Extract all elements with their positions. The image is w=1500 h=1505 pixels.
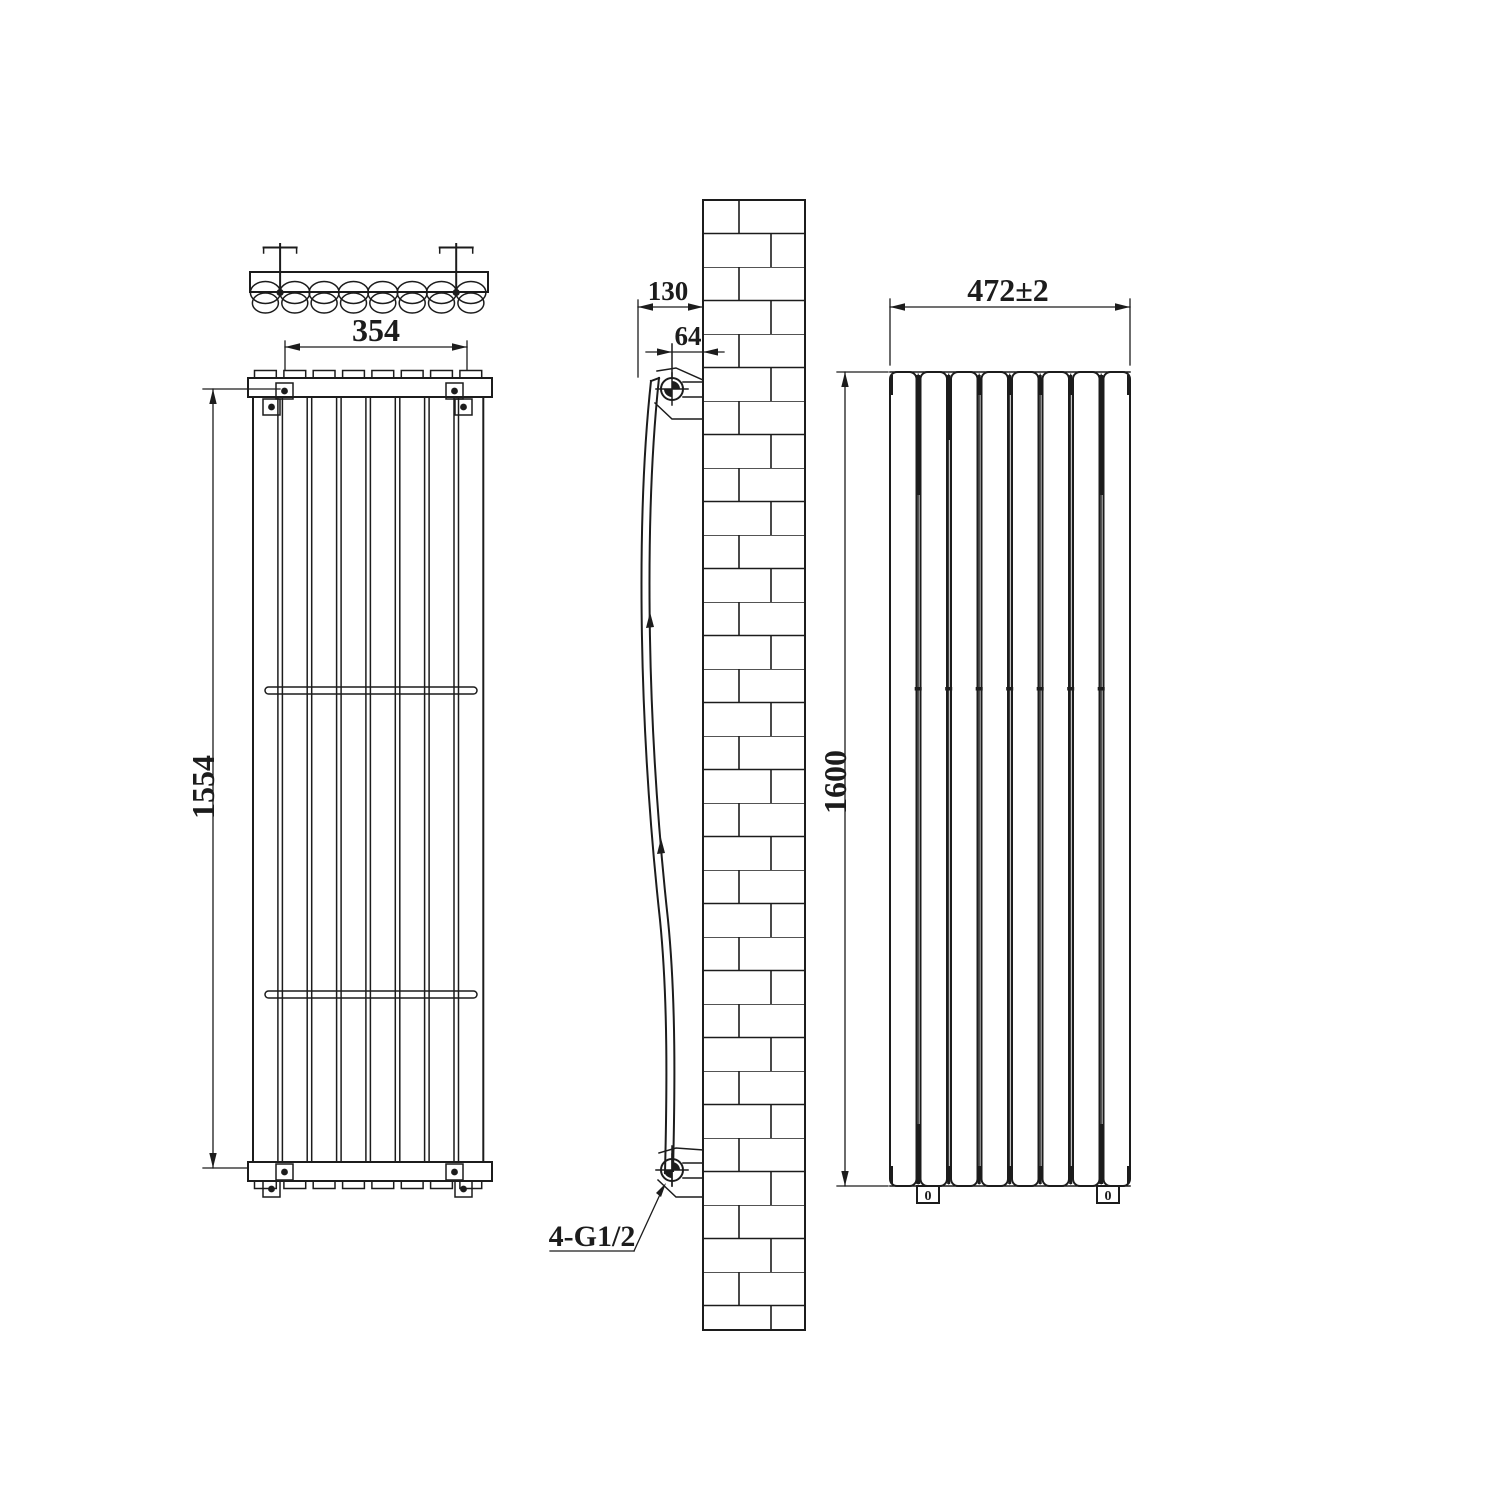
connection-callout: 4-G1/2 — [549, 1183, 666, 1253]
rear-view: 0 0 472±2 1600 — [817, 272, 1130, 1204]
section-tube-row — [250, 282, 486, 314]
brick-wall — [703, 200, 805, 1330]
dim-472-label: 472±2 — [967, 272, 1049, 308]
dim-130-label: 130 — [648, 276, 689, 306]
dim-front-height: 1554 — [185, 389, 280, 1168]
dim-rear-width: 472±2 — [890, 272, 1130, 365]
floor-bracket-right: 0 — [1097, 1186, 1119, 1204]
dim-rear-height: 1600 — [817, 372, 888, 1186]
profile-tick-lower — [657, 838, 665, 854]
front-view — [248, 371, 492, 1198]
profile-tick-upper — [646, 612, 654, 628]
drawing-canvas: 354 — [0, 0, 1500, 1500]
floor-bracket-left: 0 — [917, 1186, 939, 1204]
pipe-fitting-bottom-icon — [656, 1154, 688, 1186]
dim-1600-label: 1600 — [817, 750, 853, 814]
rear-panel-gaps — [891, 374, 1130, 1184]
dim-1554-label: 1554 — [185, 755, 221, 819]
radiator-technical-drawing: 354 — [0, 0, 1500, 1500]
radiator-side-profile — [641, 378, 674, 1173]
front-bottom-tabs — [255, 1181, 482, 1189]
floor-bracket-right-mark: 0 — [1105, 1189, 1112, 1204]
wall-pin-left-icon — [264, 244, 297, 296]
dim-bracket-width: 354 — [285, 312, 467, 370]
side-view: 130 64 4-G1/2 — [549, 200, 805, 1330]
front-tube-columns — [253, 397, 483, 1162]
top-wall-mount — [655, 344, 703, 419]
top-section-view — [250, 244, 488, 313]
dim-354-label: 354 — [352, 312, 400, 348]
connection-label: 4-G1/2 — [549, 1220, 636, 1253]
floor-bracket-left-mark: 0 — [925, 1189, 932, 1204]
front-top-tabs — [255, 371, 482, 379]
wall-pin-right-icon — [440, 244, 473, 296]
front-top-brackets — [263, 383, 472, 415]
pipe-fitting-top-icon — [656, 373, 688, 405]
dim-64-label: 64 — [675, 321, 702, 351]
